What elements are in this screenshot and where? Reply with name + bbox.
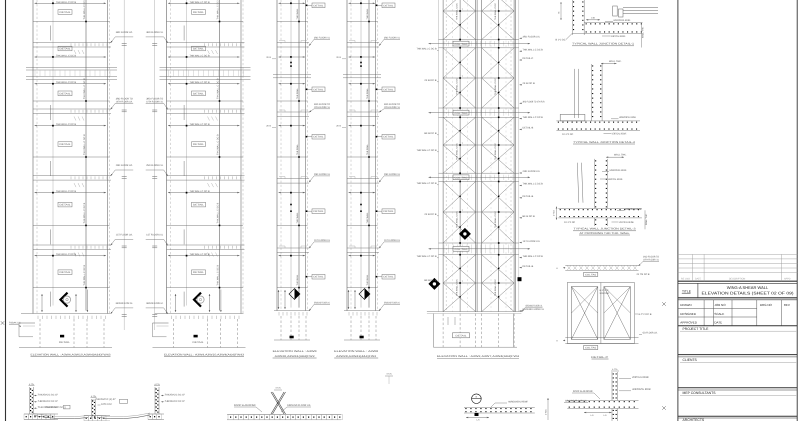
svg-text:THK.WALL.C DC B: THK.WALL.C DC B (216, 202, 219, 223)
svg-text:WING-A SHEAR WALL: WING-A SHEAR WALL (727, 285, 769, 290)
svg-text:8-1*2 DC: 8-1*2 DC (600, 289, 609, 292)
svg-text:THK.WALL.C DC B: THK.WALL.C DC B (216, 134, 219, 155)
svg-text:BF B DC B: BF B DC B (424, 132, 437, 135)
svg-text:THK.WALL: THK.WALL (296, 87, 299, 99)
svg-text:T-BE25VC/C DC 07: T-BE25VC/C DC 07 (38, 400, 59, 403)
svg-text:THK.WALL.C DC B: THK.WALL.C DC B (56, 81, 76, 84)
svg-text:2E B: 2E B (336, 56, 341, 59)
svg-text:ELEVATION WALL : A3W2,A3W7,A3: ELEVATION WALL : A3W2,A3W7,A3W4(4&4)FW4 (437, 355, 520, 358)
svg-text:DETAIL: DETAIL (314, 4, 325, 7)
svg-text:GROUND FLOOR LVL: GROUND FLOOR LVL (384, 302, 400, 305)
svg-text:AT CROSSING T4D THK. WALL: AT CROSSING T4D THK. WALL (580, 232, 631, 235)
svg-text:TYPICAL WALL JUNCTION DETAI: TYPICAL WALL JUNCTION DETAIL-1 (572, 43, 635, 46)
svg-text:THK.WALL.C DC: THK.WALL.C DC (456, 78, 459, 95)
svg-text:DESCRIPTION: DESCRIPTION (729, 278, 746, 281)
svg-text:THK.WALL.C DC: THK.WALL.C DC (494, 78, 497, 95)
svg-text:BF B DC B: BF B DC B (424, 279, 437, 282)
svg-text:TYPICAL WALL JUNCTION DETAI: TYPICAL WALL JUNCTION DETAIL-2 (573, 141, 636, 144)
svg-text:2ND FLOOR LVL: 2ND FLOOR LVL (146, 164, 164, 167)
svg-text:THK.WALL.C DC B: THK.WALL.C DC B (216, 0, 219, 20)
svg-text:DATE: DATE (695, 278, 702, 281)
svg-text:DETAIL: DETAIL (314, 136, 325, 139)
svg-text:THK.WALL.C DC: THK.WALL.C DC (456, 3, 459, 20)
svg-text:10TH FLOOR LVL: 10TH FLOOR LVL (146, 101, 164, 104)
svg-text:DETAIL: DETAIL (384, 276, 395, 279)
svg-text:2ND FLOOR LVL: 2ND FLOOR LVL (523, 170, 541, 173)
svg-text:THK.WALL: THK.WALL (366, 87, 369, 99)
svg-text:THK.WALL: THK.WALL (296, 274, 299, 286)
svg-text:3RD FLOOR LVL: 3RD FLOOR LVL (116, 31, 134, 34)
svg-text:10T12 DC: 10T12 DC (101, 403, 112, 406)
svg-text:10TH FLOOR LVL: 10TH FLOOR LVL (116, 101, 134, 104)
svg-text:B 1*2 DC: B 1*2 DC (556, 39, 566, 42)
svg-text:COL.TAG: COL.TAG (585, 347, 596, 350)
svg-text:T-BE25VC/C DC 07: T-BE25VC/C DC 07 (165, 400, 186, 403)
svg-text:ELEVATION WALL : A3W4,A3W10,A: ELEVATION WALL : A3W4,A3W10,A3W4(A&4)FW4… (164, 353, 245, 356)
svg-text:DETAIL-B: DETAIL-B (523, 127, 534, 130)
svg-text:2F B DC B: 2F B DC B (424, 79, 437, 82)
svg-text:RE LNO: RE LNO (681, 278, 690, 281)
svg-text:DRAWN: DRAWN (680, 303, 691, 307)
svg-text:A3W28,A3W41(4&4)FW2: A3W28,A3W41(4&4)FW2 (336, 355, 377, 358)
svg-text:SPACING: SPACING (600, 292, 610, 295)
svg-text:1ST FLOOR LVL: 1ST FLOOR LVL (146, 234, 164, 237)
svg-text:1ST FLOOR LVL: 1ST FLOOR LVL (523, 240, 541, 243)
svg-text:THK.WALL.C DC B: THK.WALL.C DC B (216, 265, 219, 286)
svg-text:1ST FLOOR LVL: 1ST FLOOR LVL (314, 239, 331, 242)
svg-text:THK.WALL.C DC B: THK.WALL.C DC B (417, 255, 437, 258)
svg-text:2ND FLOOR LVL: 2ND FLOOR LVL (384, 173, 401, 176)
svg-text:HORIZONTAL REINF.: HORIZONTAL REINF. (610, 169, 627, 172)
svg-text:DETAIL: DETAIL (384, 136, 395, 139)
svg-text:GROUND FLOOR LVL: GROUND FLOOR LVL (146, 302, 163, 305)
svg-text:THK.WALL.C DC: THK.WALL.C DC (494, 3, 497, 20)
svg-text:GROUND FLOOR LVL: GROUND FLOOR LVL (565, 400, 588, 403)
svg-text:2F B DC B: 2F B DC B (523, 82, 536, 85)
svg-text:10TH FLOOR LVL: 10TH FLOOR LVL (643, 259, 660, 262)
svg-text:THK25VC/C (X) 07: THK25VC/C (X) 07 (96, 398, 117, 401)
svg-text:DETAIL: DETAIL (384, 4, 395, 7)
svg-text:THK.WALL.C DC B: THK.WALL.C DC B (190, 81, 210, 84)
svg-text:PROJECT TITLE: PROJECT TITLE (683, 327, 710, 331)
svg-text:THK.WALL.C DC B: THK.WALL.C DC B (83, 134, 86, 155)
svg-text:10-1*2 DC: 10-1*2 DC (564, 221, 575, 224)
svg-text:DETAIL: DETAIL (193, 11, 205, 14)
svg-text:THK.WALL.C DC B: THK.WALL.C DC B (190, 190, 210, 193)
svg-text:THK.WALL.C DC: THK.WALL.C DC (456, 143, 459, 160)
svg-text:THK.WALL.C DC B: THK.WALL.C DC B (523, 116, 544, 119)
svg-text:THK.WALL.C DC B: THK.WALL.C DC B (417, 182, 437, 185)
svg-text:10-1*2 DC: 10-1*2 DC (562, 133, 573, 136)
svg-text:1ST FLOOR LVL: 1ST FLOOR LVL (384, 239, 401, 242)
svg-text:2-T16: 2-T16 (553, 210, 556, 216)
svg-text:DETAIL: DETAIL (456, 335, 468, 338)
svg-text:THK.WALL.C DC B: THK.WALL.C DC B (56, 123, 76, 126)
svg-text:THK.WALL.C DC B: THK.WALL.C DC B (523, 48, 544, 51)
svg-text:VERTICAL REINF.: VERTICAL REINF. (632, 376, 649, 379)
svg-text:ELEVATION WALL : A3W8: ELEVATION WALL : A3W8 (273, 350, 318, 353)
svg-text:THK.WALL.C DC B: THK.WALL.C DC B (83, 265, 86, 286)
svg-text:VERTICAL REINF.: VERTICAL REINF. (608, 178, 623, 181)
svg-text:TITLE: TITLE (682, 289, 692, 293)
svg-text:COL.TAG: COL.TAG (455, 176, 468, 179)
svg-text:COL.TAG: COL.TAG (455, 43, 468, 46)
svg-text:DRG NO: DRG NO (760, 303, 773, 307)
svg-text:HORIZONTAL REINF.: HORIZONTAL REINF. (625, 208, 642, 211)
svg-text:2E B: 2E B (266, 56, 271, 59)
svg-text:THK.WALL.C DC B: THK.WALL.C DC B (56, 253, 76, 256)
svg-text:GROUND FLOOR LVL: GROUND FLOOR LVL (523, 308, 545, 311)
svg-text:ROOF SLAB REINF.: ROOF SLAB REINF. (234, 404, 256, 407)
svg-text:GROUND FLOOR LVL: GROUND FLOOR LVL (116, 302, 133, 305)
svg-text:THK.WALL.C DC: THK.WALL.C DC (494, 211, 497, 228)
svg-text:3RD FLOOR LVL: 3RD FLOOR LVL (384, 37, 401, 40)
svg-text:10TH FLOOR LVL: 10TH FLOOR LVL (314, 106, 331, 109)
svg-text:COL.TAG: COL.TAG (585, 274, 596, 277)
svg-text:ELEVATION DETAILS (SHEET 02 OF: ELEVATION DETAILS (SHEET 02 OF 09) (702, 291, 795, 296)
svg-text:WALL THK.: WALL THK. (614, 154, 627, 157)
svg-text:ROOF SLAB REINF.: ROOF SLAB REINF. (573, 390, 593, 393)
svg-text:DETAIL: DETAIL (384, 88, 395, 91)
svg-text:THK.WALL.C DC B: THK.WALL.C DC B (417, 48, 437, 51)
svg-text:DETAIL: DETAIL (60, 143, 72, 146)
svg-text:BF B DC B: BF B DC B (523, 215, 536, 218)
svg-text:DETAIL-B: DETAIL-B (523, 265, 534, 268)
svg-text:DETAIL: DETAIL (314, 88, 325, 91)
svg-text:WALL THK.: WALL THK. (645, 213, 648, 225)
svg-text:DETAIL: DETAIL (314, 210, 325, 213)
svg-text:THK.WALL.C DC B: THK.WALL.C DC B (56, 1, 76, 4)
svg-text:DETAIL-C: DETAIL-C (523, 57, 534, 60)
svg-text:THK.WALL: THK.WALL (296, 212, 299, 224)
svg-text:THK.WALL.C DC: THK.WALL.C DC (494, 279, 497, 296)
svg-text:THK.WALL: THK.WALL (296, 8, 299, 20)
svg-text:APPROVED: APPROVED (680, 320, 698, 324)
svg-text:GD FLOOR LVL: GD FLOOR LVL (643, 332, 659, 335)
svg-text:REV: REV (784, 303, 790, 307)
svg-text:THK.WALL.C DC: THK.WALL.C DC (456, 211, 459, 228)
svg-text:COL.TAG: COL.TAG (455, 248, 468, 251)
svg-text:GROUND FLOOR LVL: GROUND FLOOR LVL (314, 302, 330, 305)
svg-text:10TH FLOOR LVL: 10TH FLOOR LVL (384, 106, 401, 109)
svg-text:THK.WALL.C DC B: THK.WALL.C DC B (83, 202, 86, 223)
svg-text:DETAIL: DETAIL (60, 204, 72, 207)
svg-text:HORIZONTAL REINF.: HORIZONTAL REINF. (619, 116, 636, 119)
svg-text:8-T*2 DC B: 8-T*2 DC B (639, 313, 652, 316)
svg-text:THK.WALL.C DC B: THK.WALL.C DC B (523, 255, 544, 258)
svg-text:JOB NO: JOB NO (714, 303, 726, 307)
svg-text:VERTICAL REINF.: VERTICAL REINF. (612, 133, 627, 136)
svg-text:2ND FLOOR LVL: 2ND FLOOR LVL (116, 164, 134, 167)
svg-text:THK.WALL.C DC B: THK.WALL.C DC B (190, 253, 210, 256)
svg-text:DETAIL: DETAIL (60, 271, 72, 274)
svg-text:TYPICAL WALL JUNCTION DETAI: TYPICAL WALL JUNCTION DETAIL-3 (574, 228, 637, 231)
svg-text:DETAIL: DETAIL (60, 48, 72, 51)
svg-text:THK.WALL: THK.WALL (296, 143, 299, 155)
svg-text:2F TM DC B: 2F TM DC B (637, 273, 650, 276)
svg-text:DETAIL-C: DETAIL-C (591, 356, 608, 359)
svg-text:THK.WALL.C DC B: THK.WALL.C DC B (190, 55, 210, 58)
svg-text:2-T16: 2-T16 (545, 409, 548, 415)
svg-text:ELEVATION WALL : A3W8: ELEVATION WALL : A3W8 (334, 350, 379, 353)
svg-text:THK25VC/C DC ( ): THK25VC/C DC ( ) (46, 406, 66, 409)
svg-text:VERTICAL REINF.: VERTICAL REINF. (619, 221, 634, 224)
svg-text:HORIZONTAL REINF.: HORIZONTAL REINF. (632, 388, 651, 391)
svg-text:APPD: APPD (784, 278, 791, 281)
svg-text:GROUND FLOOR LVL: GROUND FLOOR LVL (287, 404, 312, 407)
svg-text:THK.WALL.C DC B: THK.WALL.C DC B (56, 55, 76, 58)
svg-text:THK.WALL.C DC B: THK.WALL.C DC B (523, 183, 544, 186)
svg-text:CLIENTS: CLIENTS (683, 358, 698, 362)
svg-text:3RD FLOOR LVL: 3RD FLOOR LVL (146, 31, 164, 34)
svg-text:SCALE: SCALE (714, 312, 724, 316)
svg-text:DETAIL: DETAIL (193, 143, 205, 146)
svg-text:DETAIL: DETAIL (60, 11, 72, 14)
svg-text:4-T2s: 4-T2s (612, 368, 617, 371)
svg-text:THK25VC/C DC 07: THK25VC/C DC 07 (165, 394, 186, 397)
svg-text:2F B DC B: 2F B DC B (424, 213, 437, 216)
svg-text:THK.WALL: THK.WALL (366, 212, 369, 224)
svg-text:DESIGNED: DESIGNED (680, 312, 697, 316)
svg-text:DETAIL: DETAIL (59, 341, 71, 344)
svg-text:3RD FLOOR LVL: 3RD FLOOR LVL (523, 36, 541, 39)
svg-text:HORIZONTAL REINF.: HORIZONTAL REINF. (508, 400, 528, 403)
svg-text:DETAIL: DETAIL (60, 92, 72, 95)
svg-text:THK.WALL.C DC: THK.WALL.C DC (494, 143, 497, 160)
svg-text:2E B: 2E B (336, 125, 341, 128)
svg-text:4-T2s: 4-T2s (275, 387, 280, 390)
svg-text:THK.WALL.C DC B: THK.WALL.C DC B (83, 0, 86, 20)
svg-text:HORIZONTAL REINF.: HORIZONTAL REINF. (614, 19, 631, 22)
svg-text:THK25VC/C DC 07: THK25VC/C DC 07 (38, 394, 59, 397)
svg-text:DETAIL: DETAIL (193, 341, 205, 344)
svg-text:MEP CONSULTANTS: MEP CONSULTANTS (683, 391, 717, 395)
svg-text:2ND FLOOR LVL: 2ND FLOOR LVL (314, 173, 331, 176)
svg-text:1ST FLOOR LVL: 1ST FLOOR LVL (116, 234, 134, 237)
svg-text:DETAIL: DETAIL (193, 271, 205, 274)
svg-text:A3W28,A3W41(4&4)FW2: A3W28,A3W41(4&4)FW2 (275, 355, 316, 358)
svg-text:WALL THK.: WALL THK. (642, 26, 645, 38)
svg-text:THK.WALL.C DC B: THK.WALL.C DC B (56, 190, 76, 193)
svg-text:WALL THK.: WALL THK. (609, 60, 622, 63)
svg-text:TODAK LVL: TODAK LVL (9, 322, 22, 325)
svg-text:DETAIL: DETAIL (193, 204, 205, 207)
svg-text:THK.WALL.C DC B: THK.WALL.C DC B (190, 123, 210, 126)
svg-text:THK.WALL.C DC: THK.WALL.C DC (456, 279, 459, 296)
svg-text:DETAIL: DETAIL (193, 92, 205, 95)
svg-text:2E B: 2E B (266, 125, 271, 128)
svg-text:THK.WALL: THK.WALL (366, 8, 369, 20)
svg-text:DETAIL: DETAIL (193, 48, 205, 51)
svg-text:4-T2s: 4-T2s (386, 373, 391, 376)
svg-text:THK.WALL.C DC B: THK.WALL.C DC B (216, 78, 219, 99)
svg-text:3RD FLOOR LVL: 3RD FLOOR LVL (314, 37, 331, 40)
svg-text:GROUND FLOOR LVL: GROUND FLOOR LVL (526, 304, 543, 307)
svg-text:THK.WALL: THK.WALL (366, 143, 369, 155)
svg-text:DETAIL: DETAIL (384, 210, 395, 213)
svg-text:THK.WALL.C DC B: THK.WALL.C DC B (190, 1, 210, 4)
svg-text:THK.WALL: THK.WALL (366, 274, 369, 286)
svg-text:COL.TAG: COL.TAG (455, 112, 468, 115)
svg-text:THK.WALL.C DC B: THK.WALL.C DC B (417, 149, 437, 152)
svg-text:DETAIL-B: DETAIL-B (523, 195, 534, 198)
svg-text:DATE: DATE (714, 320, 722, 324)
svg-text:3RD FLOOR TO 4TH FLR: 3RD FLOOR TO 4TH FLR (523, 101, 545, 104)
svg-text:VERTICAL REINF.: VERTICAL REINF. (611, 35, 626, 38)
svg-text:DETAIL: DETAIL (314, 276, 325, 279)
svg-text:ELEVATION WALL : A3W4,A3W10,A: ELEVATION WALL : A3W4,A3W10,A3W4(A&4)FW4… (31, 353, 112, 356)
svg-text:THK.WALL.C DC B: THK.WALL.C DC B (83, 78, 86, 99)
